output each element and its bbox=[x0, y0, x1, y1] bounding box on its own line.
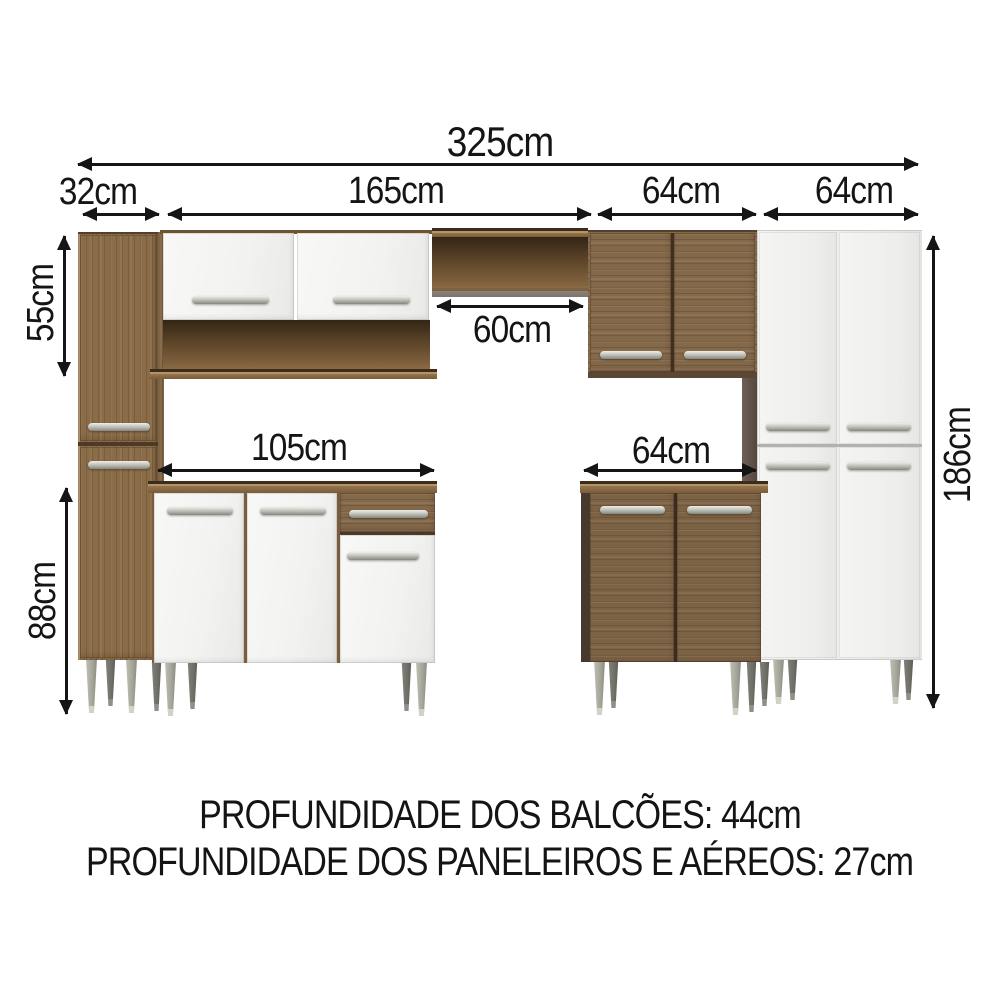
depth-notes: PROFUNDIDADE DOS BALCÕES: 44cm PROFUNDID… bbox=[0, 792, 1000, 886]
dim-label-base-right-width: 64cm bbox=[632, 432, 710, 470]
cabinet-leg bbox=[592, 662, 607, 715]
niche-interior bbox=[432, 237, 588, 288]
cabinet-leg bbox=[124, 660, 139, 713]
door-handle bbox=[88, 423, 150, 431]
dim-arrow-tall-cabinet-height bbox=[932, 236, 935, 708]
door-handle bbox=[260, 507, 326, 515]
countertop bbox=[580, 481, 768, 493]
dim-label-wall-cabinet-height: 55cm bbox=[22, 264, 60, 342]
open-shelf-middle bbox=[432, 228, 588, 297]
cabinet-door bbox=[80, 235, 156, 441]
cabinet-leg bbox=[888, 660, 903, 704]
cabinet-leg bbox=[902, 660, 915, 700]
cabinet-leg bbox=[400, 663, 413, 711]
tall-cabinet-white bbox=[757, 230, 922, 660]
base-cabinet-right bbox=[580, 481, 768, 662]
tall-cabinet-left bbox=[78, 232, 158, 660]
cabinet-door bbox=[80, 447, 156, 658]
dim-label-open-niche-width: 60cm bbox=[473, 311, 551, 349]
dim-label-tall-white-width: 64cm bbox=[815, 172, 893, 210]
cabinet-door bbox=[839, 232, 920, 444]
cabinet-leg bbox=[728, 662, 743, 715]
shelf-bottom-board bbox=[150, 369, 437, 379]
cabinet-door bbox=[839, 447, 920, 658]
door-handle bbox=[600, 351, 662, 359]
cabinet-leg bbox=[104, 660, 117, 706]
cabinet-leg bbox=[84, 660, 99, 713]
dim-arrow-tall-left-width bbox=[83, 213, 159, 216]
cabinet-door bbox=[247, 493, 337, 663]
dim-label-base-cabinet-height: 88cm bbox=[24, 562, 62, 640]
kitchen-dimension-diagram: 325cm 32cm 165cm 64cm 64cm 55cm 88cm 186… bbox=[0, 0, 1000, 1000]
dim-arrow-base-left-width bbox=[158, 469, 434, 472]
dim-arrow-open-niche-width bbox=[437, 305, 583, 308]
door-handle bbox=[847, 423, 911, 431]
cabinet-leg bbox=[414, 663, 429, 716]
drawer-handle bbox=[349, 510, 428, 518]
dim-label-total-width: 325cm bbox=[447, 121, 554, 163]
cabinet-leg bbox=[758, 662, 771, 706]
open-shelf-left bbox=[163, 320, 430, 369]
door-handle bbox=[684, 351, 746, 359]
door-handle bbox=[600, 506, 665, 514]
cabinet-bottom-edge bbox=[588, 372, 757, 378]
wall-cabinet-wood bbox=[588, 230, 757, 378]
door-handle bbox=[347, 552, 419, 560]
cabinet-door bbox=[590, 493, 674, 662]
cabinet-door bbox=[759, 232, 837, 444]
cabinet-leg bbox=[745, 662, 758, 712]
door-handle bbox=[333, 296, 410, 304]
base-cabinet-left bbox=[148, 481, 440, 663]
door-handle bbox=[167, 507, 233, 515]
cabinet-leg bbox=[786, 660, 799, 700]
countertop bbox=[148, 481, 437, 493]
door-handle bbox=[687, 506, 752, 514]
cabinet-door bbox=[677, 493, 761, 662]
door-handle bbox=[766, 423, 830, 431]
door-handle bbox=[766, 462, 830, 470]
door-handle bbox=[88, 461, 150, 469]
door-handle bbox=[192, 296, 269, 304]
dim-arrow-wall-section-width bbox=[168, 213, 591, 216]
niche-top-board bbox=[432, 228, 588, 237]
dim-label-tall-left-width: 32cm bbox=[59, 173, 137, 211]
niche-shelf-board bbox=[432, 288, 588, 297]
wall-cabinet-white bbox=[160, 230, 437, 378]
dim-arrow-wall-cabinet-height bbox=[63, 236, 66, 376]
cabinet-leg bbox=[607, 662, 620, 708]
dim-arrow-tall-white-width bbox=[764, 213, 918, 216]
depth-note-paneleiros: PROFUNDIDADE DOS PANELEIROS E AÉREOS: 27… bbox=[86, 839, 913, 886]
cabinet-door bbox=[154, 493, 244, 663]
dim-arrow-total-width bbox=[78, 163, 918, 166]
dim-label-base-left-width: 105cm bbox=[251, 429, 347, 467]
cabinet-leg bbox=[150, 663, 163, 711]
cabinet-door bbox=[759, 447, 837, 658]
depth-note-balcoes: PROFUNDIDADE DOS BALCÕES: 44cm bbox=[199, 792, 801, 839]
dim-label-wall-wood-width: 64cm bbox=[642, 172, 720, 210]
cabinet-door bbox=[297, 233, 429, 320]
dim-arrow-base-cabinet-height bbox=[65, 488, 68, 714]
cabinet-door bbox=[163, 233, 294, 320]
dim-arrow-base-right-width bbox=[584, 469, 756, 472]
cabinet-leg bbox=[163, 663, 178, 716]
dim-arrow-wall-wood-width bbox=[598, 213, 756, 216]
cabinet-divider bbox=[78, 442, 158, 446]
cabinet-leg bbox=[186, 663, 199, 709]
dim-label-tall-cabinet-height: 186cm bbox=[939, 407, 977, 503]
door-handle bbox=[847, 462, 911, 470]
dim-label-wall-section-width: 165cm bbox=[348, 172, 444, 210]
cabinet-leg bbox=[771, 660, 786, 704]
